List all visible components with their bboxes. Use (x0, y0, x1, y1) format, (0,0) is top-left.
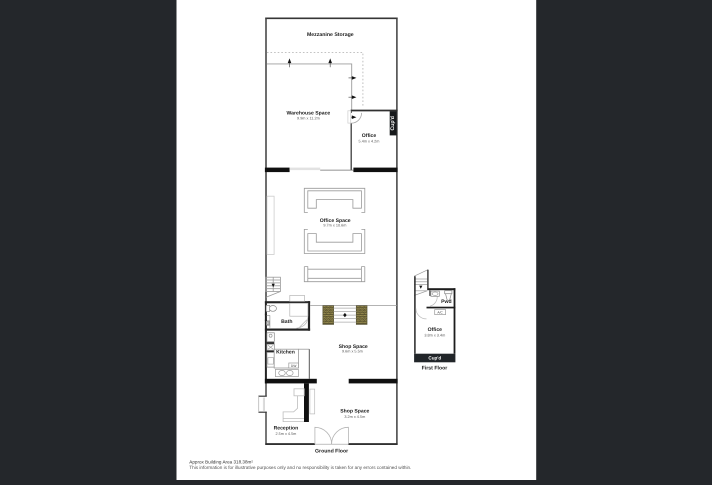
svg-text:DW: DW (291, 364, 296, 368)
svg-text:Cup'd: Cup'd (428, 355, 441, 360)
svg-text:9.6m x 5.5m: 9.6m x 5.5m (342, 350, 363, 354)
svg-text:Approx Building Area 318.38m²: Approx Building Area 318.38m² (189, 459, 253, 464)
svg-text:This information is for illust: This information is for illustrative pur… (189, 465, 411, 470)
svg-text:Ground Floor: Ground Floor (315, 449, 348, 455)
svg-text:First Floor: First Floor (422, 366, 448, 372)
svg-text:Bath: Bath (281, 319, 292, 325)
svg-text:3.8m x 3.4m: 3.8m x 3.4m (424, 333, 445, 337)
svg-text:Office: Office (362, 133, 377, 139)
svg-text:Office: Office (428, 327, 443, 333)
svg-text:5.4m x 4.2m: 5.4m x 4.2m (359, 140, 380, 144)
svg-text:Reception: Reception (274, 425, 299, 431)
svg-text:Kitchen: Kitchen (276, 350, 295, 356)
svg-text:9.7m x 10.6m: 9.7m x 10.6m (323, 223, 346, 227)
svg-text:A/C: A/C (437, 311, 443, 315)
svg-text:2.5m x 4.5m: 2.5m x 4.5m (275, 432, 296, 436)
svg-text:Mezzanine Storage: Mezzanine Storage (307, 32, 354, 38)
svg-text:9.9m x 11.2m: 9.9m x 11.2m (297, 116, 320, 120)
svg-text:3.2m x 4.5m: 3.2m x 4.5m (344, 415, 365, 419)
svg-text:Pwd: Pwd (441, 299, 451, 305)
svg-text:Shop Space: Shop Space (340, 408, 369, 414)
svg-text:Cup'd: Cup'd (390, 116, 396, 131)
